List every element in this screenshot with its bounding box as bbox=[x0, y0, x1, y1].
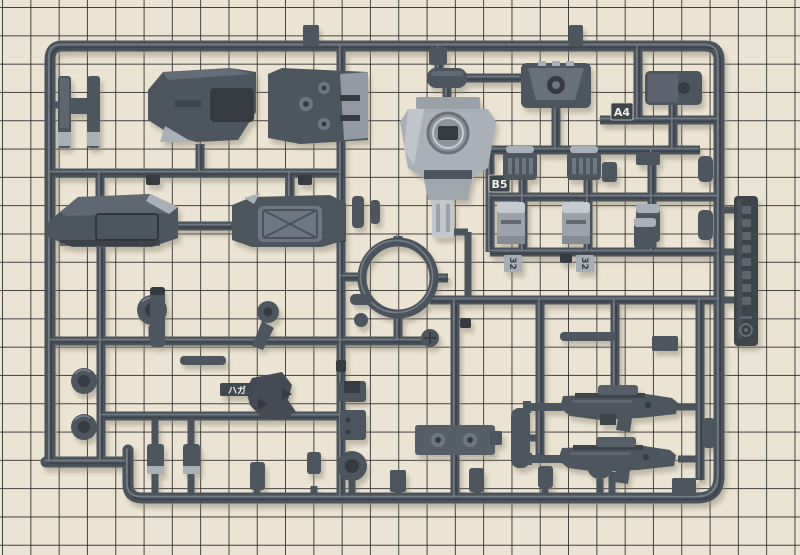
wheel-part bbox=[71, 368, 97, 394]
small-block-part bbox=[429, 47, 447, 65]
gate-number-text: 32 bbox=[507, 257, 517, 270]
hand-part bbox=[503, 146, 537, 180]
silver-leg-part bbox=[562, 202, 590, 244]
runner-tag bbox=[734, 196, 758, 346]
small-tab-part bbox=[469, 468, 484, 492]
u-bracket-part bbox=[338, 381, 366, 402]
gate-number-text: 32 bbox=[579, 257, 589, 270]
runner-marking-label: ハガ bbox=[220, 383, 254, 397]
gate-number-plate: 32 bbox=[576, 255, 594, 272]
tall-bar-part bbox=[150, 287, 165, 347]
capsule-part bbox=[698, 210, 713, 240]
pin-part bbox=[370, 200, 380, 224]
boot-part bbox=[147, 444, 164, 474]
boot-part bbox=[183, 444, 200, 474]
knob-part bbox=[421, 329, 439, 347]
drum-part bbox=[337, 451, 367, 481]
small-tab-part bbox=[538, 466, 553, 488]
corner-block-part bbox=[672, 478, 696, 496]
hatch-hull-part bbox=[232, 193, 346, 247]
hull-plate-part bbox=[148, 68, 256, 142]
photo-model-kit-runner: A4 B5 bbox=[0, 0, 800, 555]
small-tab-part bbox=[307, 452, 321, 474]
small-tab-part bbox=[390, 470, 406, 492]
ball-joint-part bbox=[350, 294, 372, 305]
capsule-part bbox=[698, 156, 713, 182]
boss-plate-part bbox=[415, 425, 502, 455]
small-bracket-part bbox=[636, 152, 660, 165]
small-leg-part bbox=[634, 218, 656, 248]
pin-part bbox=[352, 196, 364, 228]
rod-part bbox=[560, 332, 616, 341]
ball-part bbox=[354, 313, 368, 327]
box-part bbox=[645, 71, 702, 105]
small-tab-part bbox=[250, 462, 265, 490]
wheel-part bbox=[71, 414, 97, 440]
runner-marking-text: ハガ bbox=[228, 385, 246, 397]
position-label-a4: A4 bbox=[611, 103, 633, 120]
silver-leg-part bbox=[497, 202, 525, 244]
small-box-part bbox=[652, 336, 678, 351]
top-tab-part bbox=[303, 25, 319, 46]
top-tab-part bbox=[569, 25, 583, 46]
small-block-part bbox=[602, 162, 617, 182]
gate-number-plate: 32 bbox=[504, 255, 522, 272]
box-two-holes-part bbox=[340, 410, 366, 440]
hull-plate-part bbox=[268, 68, 368, 144]
scene: A4 B5 bbox=[0, 0, 800, 555]
rod-part bbox=[180, 356, 226, 365]
b5-label-text: B5 bbox=[491, 178, 507, 191]
capsule-part bbox=[702, 418, 716, 448]
capsule-highlight bbox=[431, 71, 463, 76]
camera-box-part bbox=[521, 61, 591, 108]
hand-part bbox=[567, 146, 601, 180]
a4-label-text: A4 bbox=[614, 106, 631, 119]
